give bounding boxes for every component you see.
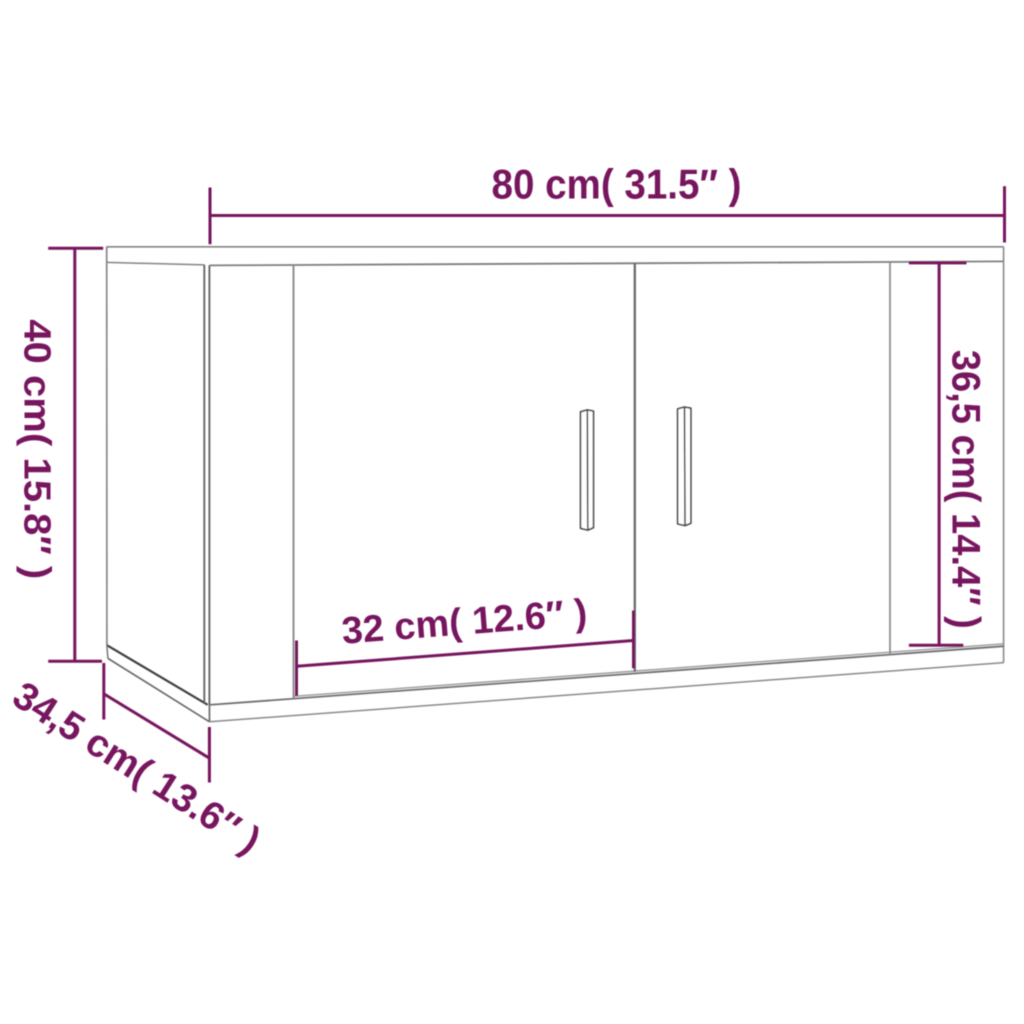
svg-text:36,5 cm( 14.4″ ): 36,5 cm( 14.4″ ) xyxy=(944,350,988,629)
svg-text:40 cm( 15.8″ ): 40 cm( 15.8″ ) xyxy=(15,319,57,579)
svg-text:80 cm( 31.5″ ): 80 cm( 31.5″ ) xyxy=(492,161,742,208)
